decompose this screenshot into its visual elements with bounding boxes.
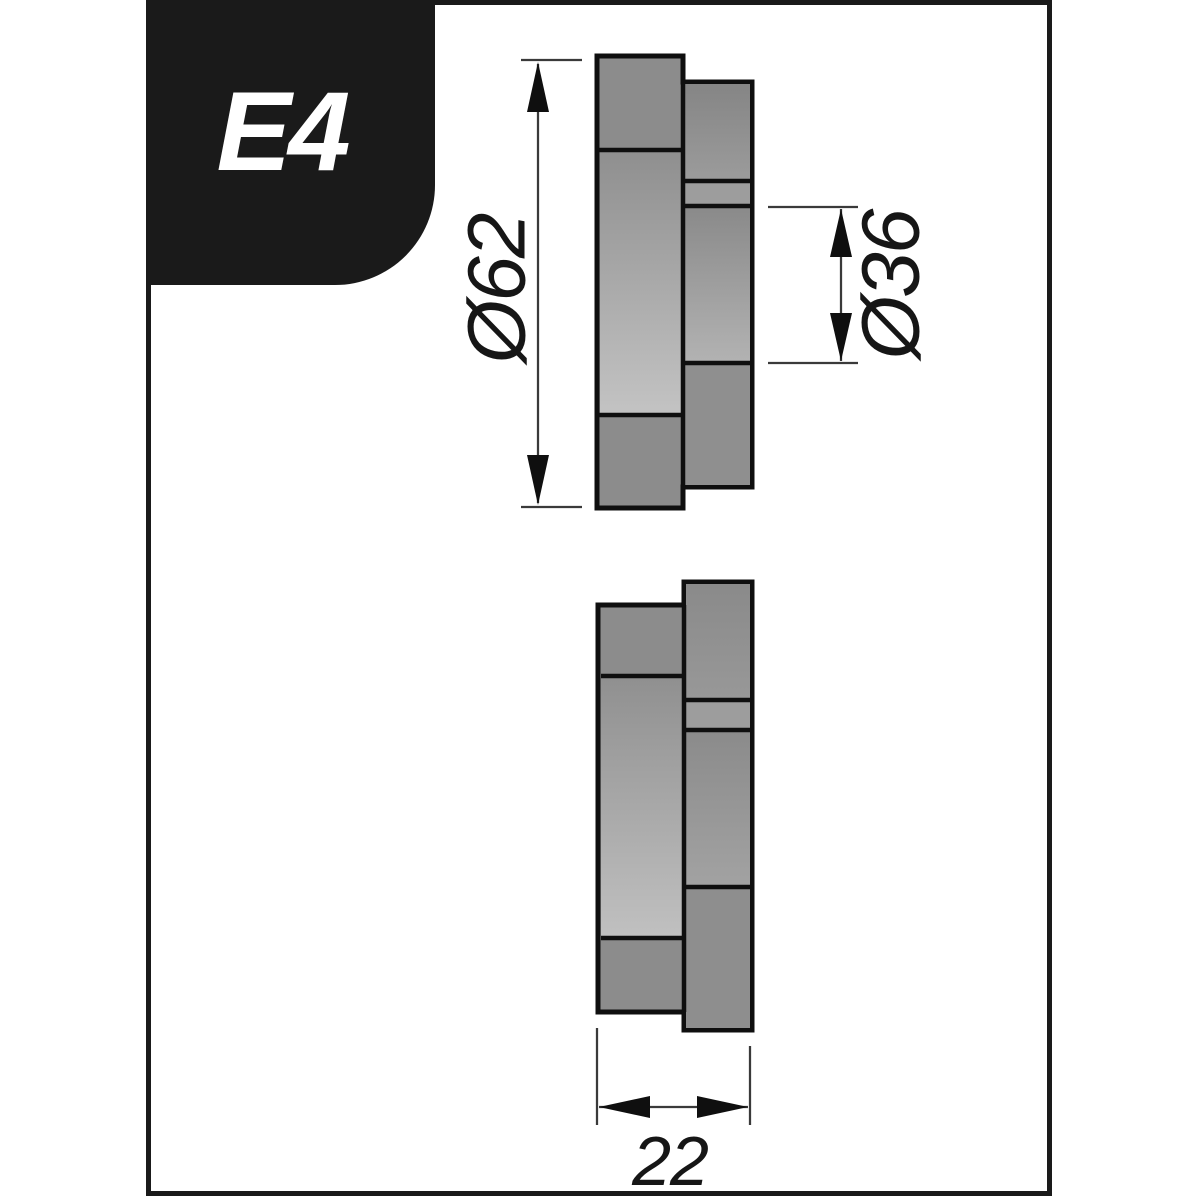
width-label: 22 <box>631 1122 708 1200</box>
lower-roller-cross-section <box>598 582 752 1030</box>
upper-roller-body-face <box>600 152 681 413</box>
inner-diameter-label: Ø36 <box>846 208 937 362</box>
outer-diameter-label: Ø62 <box>452 213 543 366</box>
technical-drawing-canvas: E4 Ø62 <box>0 0 1200 1200</box>
upper-roller-hub-mid-face <box>685 208 750 361</box>
lower-roller-body-face <box>601 678 682 936</box>
upper-roller-hub-bottom-face <box>685 365 750 485</box>
lower-roller-hub-mid-face <box>686 732 750 885</box>
upper-roller-groove-band <box>685 183 750 204</box>
lower-roller-hub-top-face <box>686 584 750 700</box>
lower-roller-hub-bottom-face <box>686 889 750 1028</box>
upper-roller-cross-section <box>597 56 752 508</box>
upper-roller-hub-top-face <box>685 84 750 179</box>
product-drawing-page: E4 Ø62 <box>0 0 1200 1200</box>
type-badge-label: E4 <box>217 69 350 194</box>
lower-roller-groove-band <box>686 702 750 728</box>
